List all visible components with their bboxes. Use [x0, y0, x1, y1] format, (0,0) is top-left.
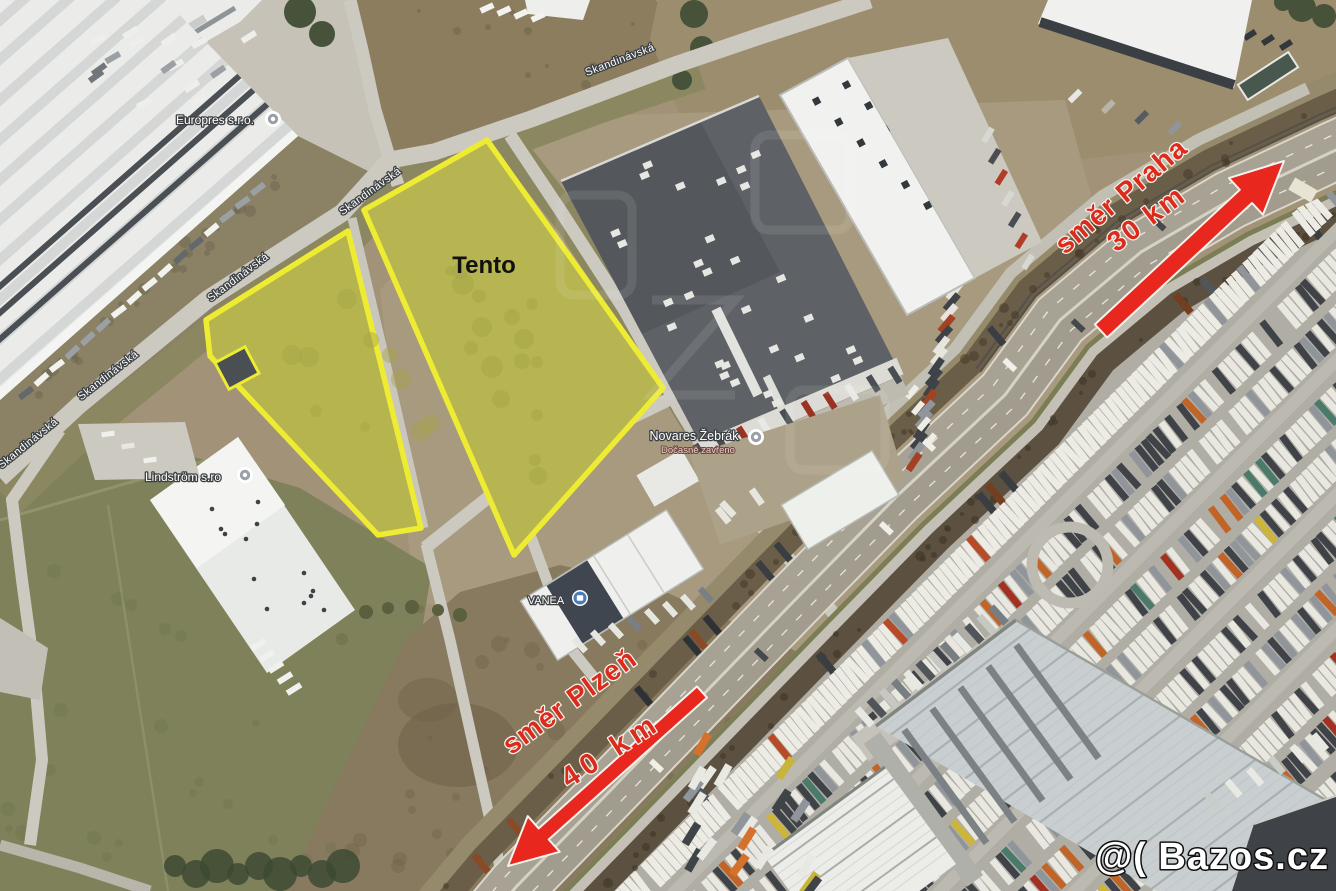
svg-text:Dočasně zavřeno: Dočasně zavřeno — [661, 445, 735, 456]
svg-text:Europres s.r.o.: Europres s.r.o. — [176, 113, 254, 127]
svg-text:Novares Žebrák: Novares Žebrák — [650, 428, 740, 443]
svg-text:Lindström s.ro: Lindström s.ro — [145, 470, 221, 484]
svg-text:@( Bazos.cz: @( Bazos.cz — [1095, 836, 1329, 878]
svg-text:VANEA: VANEA — [528, 595, 565, 607]
svg-text:Tento: Tento — [452, 252, 516, 279]
